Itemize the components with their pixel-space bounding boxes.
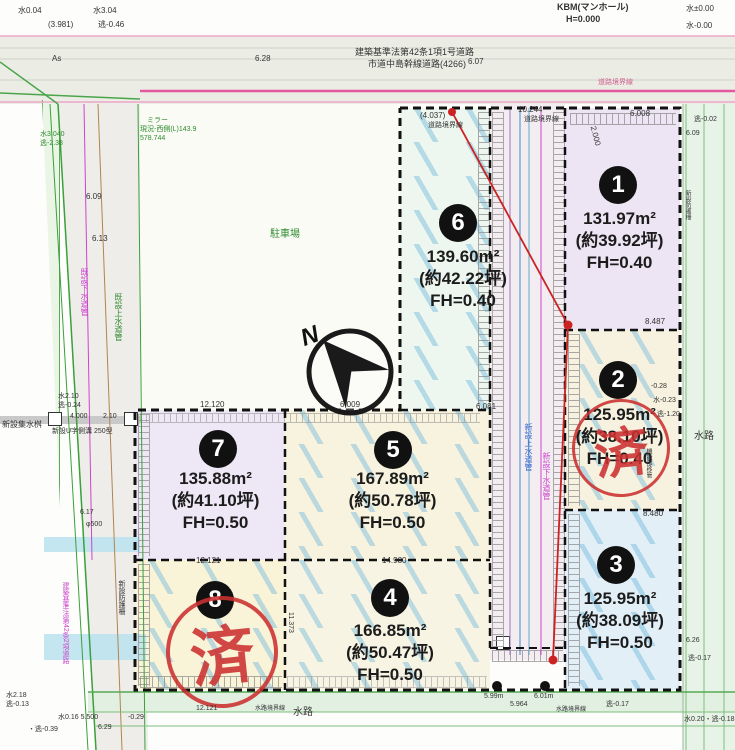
map-annotation: 12.121 (196, 705, 217, 712)
map-annotation: 逃-0.17 (688, 655, 711, 662)
map-annotation: 建築基準法第42条2項道路 (62, 582, 69, 664)
map-annotation: 6.29 (98, 724, 112, 731)
map-annotation: KBM(マンホール) (557, 3, 629, 12)
map-annotation: 新設下水道管 (542, 452, 550, 500)
map-annotation: 6.28 (255, 55, 271, 63)
plot-area: 131.97m² (552, 208, 687, 230)
plot-fh: FH=0.50 (300, 664, 480, 686)
map-annotation: 5.964 (510, 701, 528, 708)
map-annotation: 逃-0.24 (58, 402, 81, 409)
plot-6-number: 6 (439, 204, 477, 242)
plot-area: 167.89m² (305, 468, 480, 490)
plot-7-number: 7 (199, 430, 237, 468)
map-annotation: 水0.20・逃-0.18 (684, 716, 735, 723)
map-annotation: 逃-1.20 (657, 411, 680, 418)
map-annotation: 10.244 (518, 106, 542, 114)
map-annotation: 水2.10 (58, 393, 79, 400)
plot-3-info: 125.95m² (約38.09坪) FH=0.50 (550, 588, 690, 654)
plot-map: N 1 2 3 4 5 6 7 8 131.97m² (約39.92坪) FH=… (0, 0, 735, 750)
plot-tsubo: (約50.78坪) (305, 490, 480, 512)
map-annotation: 6.09 (686, 130, 700, 137)
map-annotation: 578.744 (140, 135, 165, 142)
map-annotation: 水-0.00 (686, 22, 712, 30)
plot-tsubo: (約50.47坪) (300, 642, 480, 664)
map-annotation: 6.09 (86, 193, 102, 201)
map-annotation: 建築基準法第42条1項1号道路 (355, 48, 474, 57)
map-annotation: 12.120 (200, 401, 224, 409)
plot-fh: FH=0.50 (138, 512, 293, 534)
map-annotation: 逃-0.17 (606, 701, 629, 708)
map-annotation: 6.081 (476, 403, 496, 411)
map-annotation: 8.487 (645, 318, 665, 326)
map-annotation: -0.28 (651, 383, 667, 390)
plot-area: 139.60m² (388, 246, 538, 268)
map-annotation: 6.009 (340, 401, 360, 409)
map-annotation: 水±0.00 (686, 5, 714, 13)
map-annotation: 既設下水道管 (80, 268, 88, 316)
map-annotation: 6.17 (80, 509, 94, 516)
map-annotation: 既設上水道管 (114, 293, 122, 341)
map-annotation: 水路 (293, 708, 313, 718)
map-annotation: ミラー (147, 117, 168, 124)
map-annotation: 6.008 (630, 110, 650, 118)
plot-tsubo: (約42.22坪) (388, 268, 538, 290)
map-annotation: 11.373 (287, 612, 294, 633)
map-annotation: -0.29 (128, 714, 144, 721)
map-annotation: 道路境界線 (598, 79, 633, 86)
benchmark-dot (540, 681, 550, 691)
map-annotation: ・逃-0.39 (28, 726, 58, 733)
map-annotation: (3.981) (48, 21, 73, 29)
map-annotation: 6.26 (686, 637, 700, 644)
plot-tsubo: (約38.09坪) (550, 610, 690, 632)
map-annotation: 新設上水道管 (524, 423, 532, 471)
plot-4-number: 4 (371, 579, 409, 617)
plot-1-number: 1 (599, 166, 637, 204)
map-annotation: 2.10 (103, 413, 117, 420)
north-label: N (297, 320, 323, 352)
plot-fh: FH=0.40 (552, 252, 687, 274)
map-annotation: 市道中島幹線道路(4266) (368, 60, 466, 69)
map-annotation: 逃-2.38 (40, 140, 63, 147)
map-annotation: φ500 (86, 521, 102, 528)
map-annotation: 6.01m (534, 693, 553, 700)
map-annotation: 6.13 (92, 235, 108, 243)
plot-1-info: 131.97m² (約39.92坪) FH=0.40 (552, 208, 687, 274)
map-annotation: 道路境界線 (524, 116, 559, 123)
map-annotation: 8.480 (643, 510, 663, 518)
map-annotation: 水3.040 (40, 131, 65, 138)
map-annotation: 逃-0.02 (694, 116, 717, 123)
plot-area: 135.88m² (138, 468, 293, 490)
map-annotation: 6.07 (468, 58, 484, 66)
plot-area: 166.85m² (300, 620, 480, 642)
map-annotation: 水路 (694, 432, 714, 442)
map-annotation: 新設防護柵 (118, 580, 125, 615)
map-annotation: 14.980 (382, 557, 406, 565)
plot-7-info: 135.88m² (約41.10坪) FH=0.50 (138, 468, 293, 534)
map-annotation: 水0.04 (18, 7, 42, 15)
map-annotation: 水路境界線 (556, 707, 586, 713)
plot-tsubo: (約39.92坪) (552, 230, 687, 252)
plot-6-info: 139.60m² (約42.22坪) FH=0.40 (388, 246, 538, 312)
plot-4-info: 166.85m² (約50.47坪) FH=0.50 (300, 620, 480, 686)
map-annotation: As (52, 55, 61, 63)
map-annotation: 水2.18 (6, 692, 27, 699)
plot-fh: FH=0.40 (388, 290, 538, 312)
map-annotation: 12.121 (196, 557, 220, 565)
map-annotation: 水0.16 5.500 (58, 714, 98, 721)
map-annotation: 水-0.23 (653, 397, 676, 404)
map-annotation: 新設防護柵 (684, 190, 690, 220)
map-annotation: 道路境界線 (428, 122, 463, 129)
map-annotation: (4.037) (420, 112, 445, 120)
map-annotation: 新設集水桝 (2, 421, 42, 429)
map-annotation: 4.000 (70, 413, 88, 420)
plot-fh: FH=0.50 (305, 512, 480, 534)
plot-5-number: 5 (374, 431, 412, 469)
map-annotation: 逃-0.13 (6, 701, 29, 708)
plot-3-number: 3 (597, 546, 635, 584)
map-annotation: 水3.04 (93, 7, 117, 15)
map-annotation: 現況-西側(L)143.9 (140, 126, 196, 133)
plot-2-number: 2 (599, 361, 637, 399)
map-annotation: 新設U字側溝 250型 (52, 428, 113, 435)
map-annotation: H=0.000 (566, 15, 600, 24)
map-annotation: 水路境界線 (255, 706, 285, 712)
map-annotation: 駐車場 (270, 230, 300, 240)
benchmark-dot (492, 681, 502, 691)
map-annotation: 機能部移管 (645, 448, 651, 478)
plot-area: 125.95m² (550, 588, 690, 610)
plot-tsubo: (約41.10坪) (138, 490, 293, 512)
map-annotation: 5.99m (484, 693, 503, 700)
map-annotation: 逃-0.46 (98, 21, 124, 29)
plot-5-info: 167.89m² (約50.78坪) FH=0.50 (305, 468, 480, 534)
plot-fh: FH=0.50 (550, 632, 690, 654)
